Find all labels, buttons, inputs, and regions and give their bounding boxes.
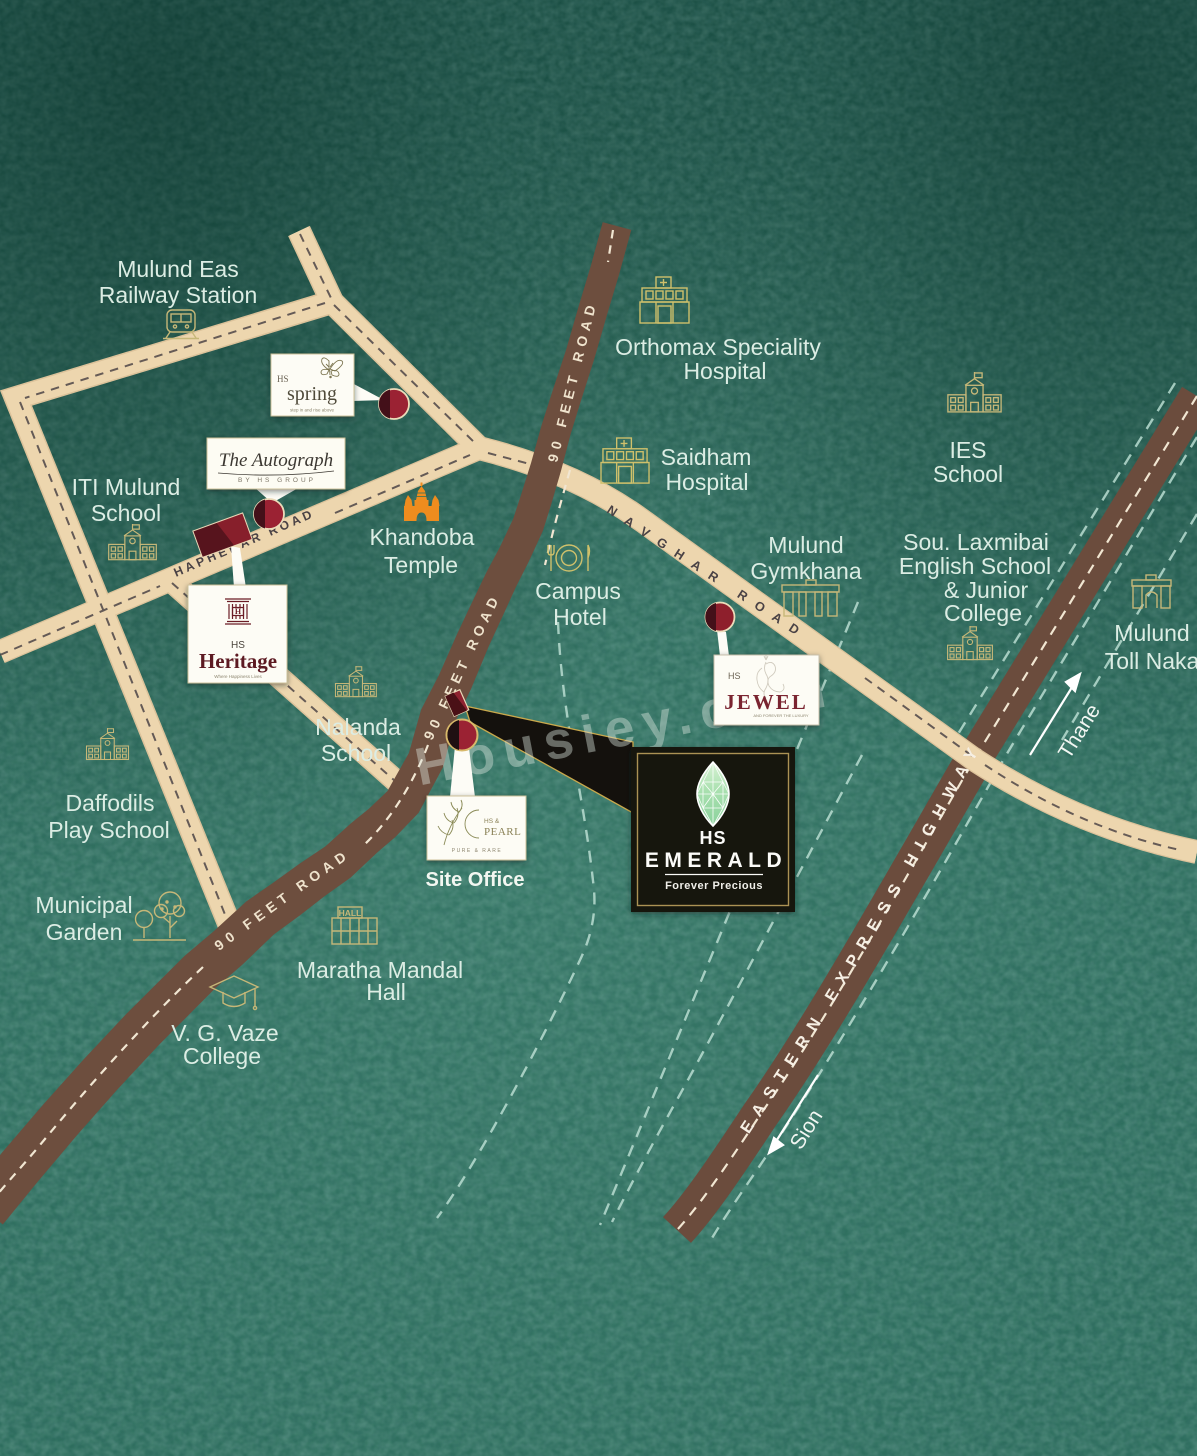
svg-text:Gymkhana: Gymkhana [750, 558, 861, 584]
svg-text:Toll Naka: Toll Naka [1105, 648, 1197, 674]
svg-text:Temple: Temple [384, 552, 458, 578]
svg-text:Mulund Eas: Mulund Eas [117, 256, 238, 282]
svg-text:Forever Precious: Forever Precious [665, 880, 763, 892]
svg-text:H: H [235, 607, 242, 616]
svg-text:School: School [933, 461, 1003, 487]
svg-text:EMERALD: EMERALD [645, 849, 787, 872]
svg-text:Nalanda: Nalanda [315, 714, 401, 740]
svg-text:Heritage: Heritage [199, 649, 277, 673]
svg-text:The Autograph: The Autograph [219, 450, 333, 471]
svg-text:Site Office: Site Office [426, 869, 525, 891]
svg-text:Play School: Play School [48, 817, 169, 843]
svg-text:Campus: Campus [535, 578, 621, 604]
svg-text:IES: IES [949, 437, 986, 463]
svg-text:BY HS GROUP: BY HS GROUP [238, 477, 316, 484]
svg-text:Where Happiness Lives: Where Happiness Lives [214, 674, 262, 679]
svg-text:Sou. Laxmibai: Sou. Laxmibai [903, 529, 1049, 555]
svg-text:HS: HS [699, 828, 726, 848]
svg-text:HALL: HALL [339, 908, 362, 918]
svg-text:Mulund: Mulund [768, 532, 843, 558]
svg-text:Daffodils: Daffodils [65, 790, 154, 816]
svg-text:English School: English School [899, 553, 1051, 579]
svg-text:Hospital: Hospital [683, 358, 766, 384]
svg-text:ITI Mulund: ITI Mulund [72, 474, 181, 500]
svg-text:Municipal: Municipal [35, 892, 132, 918]
svg-text:PURE & RARE: PURE & RARE [452, 848, 502, 854]
svg-text:Hall: Hall [366, 979, 406, 1005]
svg-text:Mulund: Mulund [1114, 620, 1189, 646]
svg-text:Saidham: Saidham [661, 444, 752, 470]
svg-text:Hospital: Hospital [665, 469, 748, 495]
svg-text:step in and rise above: step in and rise above [290, 408, 335, 413]
svg-text:spring: spring [287, 383, 337, 405]
svg-text:College: College [944, 600, 1022, 626]
svg-text:HS: HS [728, 671, 741, 681]
svg-text:Orthomax Speciality: Orthomax Speciality [615, 334, 821, 360]
svg-text:Hotel: Hotel [553, 604, 607, 630]
svg-text:HS &: HS & [484, 818, 500, 825]
svg-text:College: College [183, 1043, 261, 1069]
svg-text:School: School [91, 500, 161, 526]
svg-text:Garden: Garden [46, 919, 123, 945]
svg-text:JEWEL: JEWEL [724, 690, 808, 714]
svg-text:PEARL: PEARL [484, 826, 521, 838]
svg-text:Khandoba: Khandoba [370, 524, 475, 550]
svg-text:Railway Station: Railway Station [99, 282, 258, 308]
svg-text:AND FOREVER THE LUXURY: AND FOREVER THE LUXURY [753, 713, 809, 718]
svg-text:School: School [321, 740, 391, 766]
